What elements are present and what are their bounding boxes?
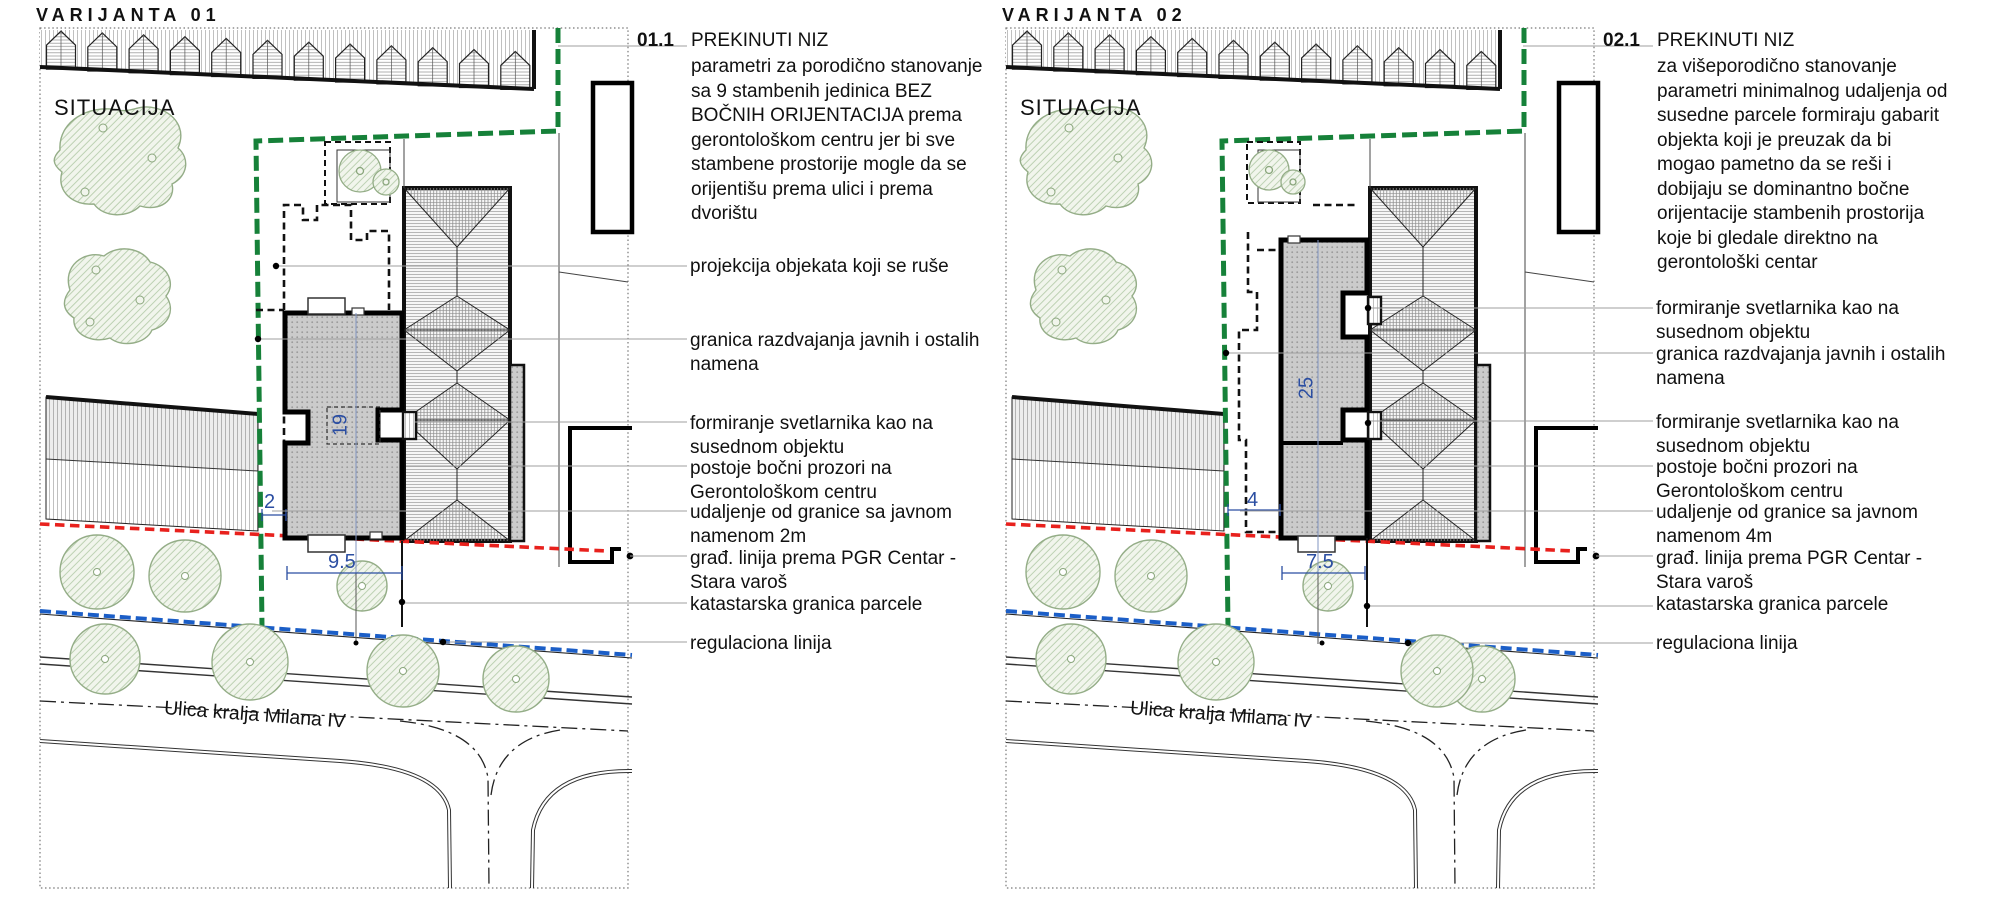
dim-depth-02: 25 [1296, 377, 1319, 399]
callout-regulation: regulaciona linija [1656, 632, 1958, 656]
callout-skylight: formiranje svetlarnika kao na susednom o… [690, 412, 992, 459]
variant-02-plan-label: SITUACIJA [1020, 95, 1141, 121]
callout-regulation: regulaciona linija [690, 632, 992, 656]
variant-01-note-ref: 01.1 [637, 30, 674, 52]
callout-building-line: građ. linija prema PGR Centar - Stara va… [690, 547, 992, 594]
dim-setback-01: 2 [264, 491, 275, 514]
variant-01-plan-label: SITUACIJA [54, 95, 175, 121]
street-trees-variant-01 [367, 635, 439, 707]
variant-01-title: VARIJANTA 01 [36, 5, 221, 26]
callout-cadastral: katastarska granica parcele [690, 593, 992, 617]
entrance-porch-top [308, 298, 345, 314]
dim-setback-02: 4 [1247, 489, 1258, 512]
variant-02-note-body: za višeporodično stanovanje parametri mi… [1657, 55, 1953, 276]
callout-skylight-upper: formiranje svetlarnika kao na susednom o… [1656, 297, 1958, 344]
site-plan-sheet: { "colors": { "boundary_green": "#168139… [0, 0, 2000, 918]
dim-width-01: 9.5 [328, 551, 356, 574]
callout-skylight-lower: formiranje svetlarnika kao na susednom o… [1656, 411, 1958, 458]
variant-02-note-heading: PREKINUTI NIZ [1657, 30, 1794, 52]
callout-cadastral: katastarska granica parcele [1656, 593, 1958, 617]
variant-02-title: VARIJANTA 02 [1002, 5, 1187, 26]
tree-pair-in-box [1249, 150, 1305, 194]
variant-01-note-body: parametri za porodično stanovanje sa 9 s… [691, 55, 987, 227]
callout-public-boundary: granica razdvajanja javnih i ostalih nam… [690, 329, 992, 376]
dim-width-02: 7.5 [1306, 551, 1334, 574]
entrance-porch-bottom [308, 535, 345, 552]
callout-setback: udaljenje od granice sa javnom namenom 2… [690, 501, 992, 548]
variant-02-note-ref: 02.1 [1603, 30, 1640, 52]
callout-demolition: projekcija objekata koji se ruše [690, 255, 992, 279]
dim-depth-01: 19 [330, 414, 353, 436]
callout-side-windows: postoje bočni prozori na Gerontološkom c… [1656, 456, 1958, 503]
new-building-variant-02 [1281, 240, 1367, 538]
entrance-porch-bottom [1298, 536, 1335, 552]
callout-building-line: građ. linija prema PGR Centar - Stara va… [1656, 547, 1958, 594]
street-trees-variant-02 [1401, 635, 1473, 707]
callout-side-windows: postoje bočni prozori na Gerontološkom c… [690, 457, 992, 504]
skylight-neighbour [403, 412, 416, 439]
callout-public-boundary: granica razdvajanja javnih i ostalih nam… [1656, 343, 1958, 390]
variant-01-note-heading: PREKINUTI NIZ [691, 30, 828, 52]
callout-setback: udaljenje od granice sa javnom namenom 4… [1656, 501, 1958, 548]
